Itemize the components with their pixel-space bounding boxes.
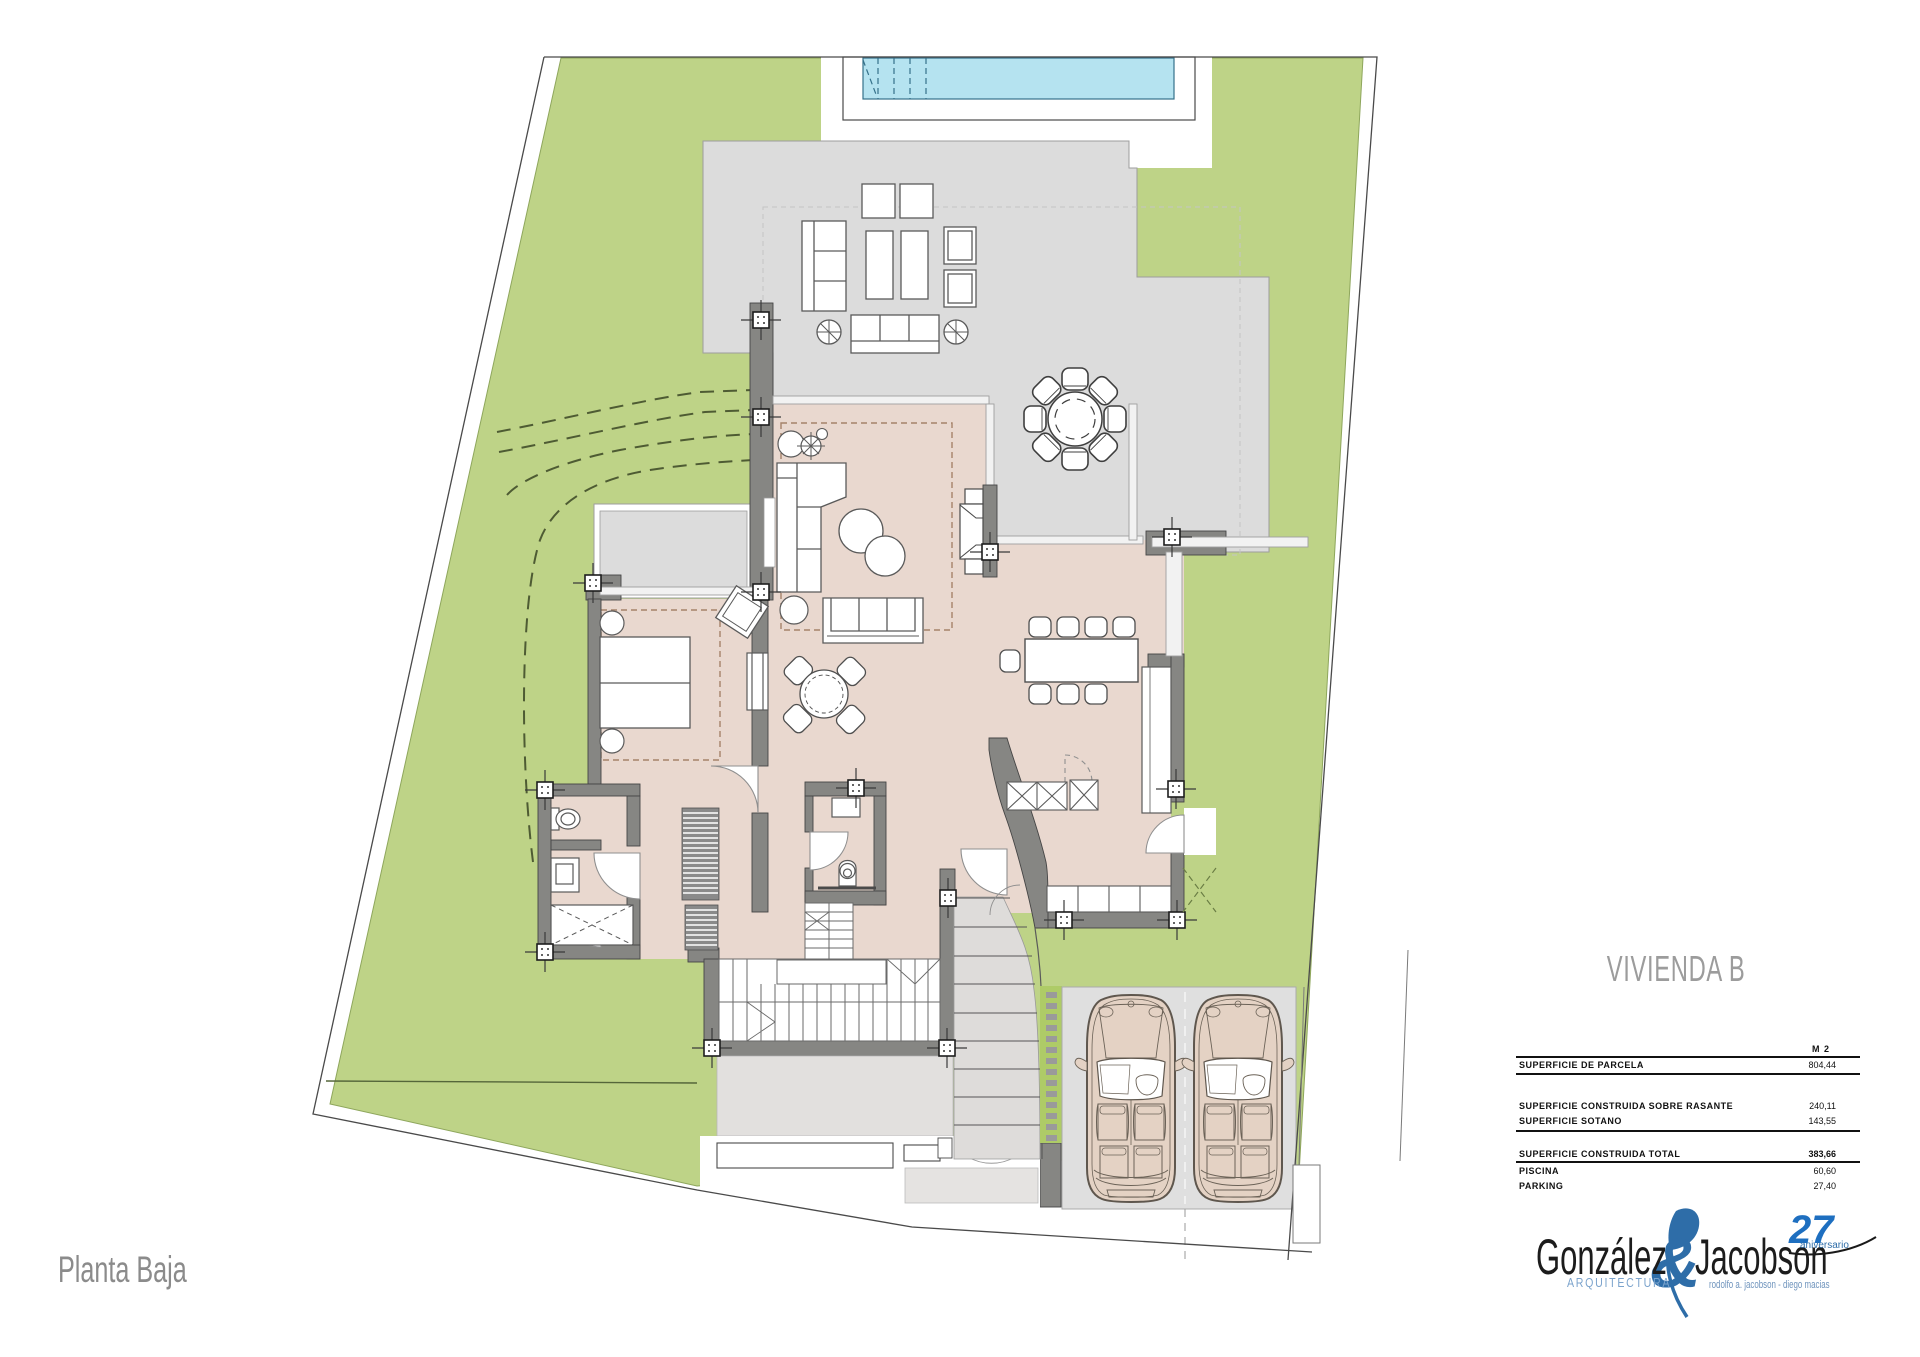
svg-text:aniversario: aniversario [1800,1240,1849,1251]
svg-text:ARQUITECTURA: ARQUITECTURA [1567,1276,1671,1290]
svg-text:rodolfo a. jacobson - diego ma: rodolfo a. jacobson - diego macias [1709,1279,1830,1292]
